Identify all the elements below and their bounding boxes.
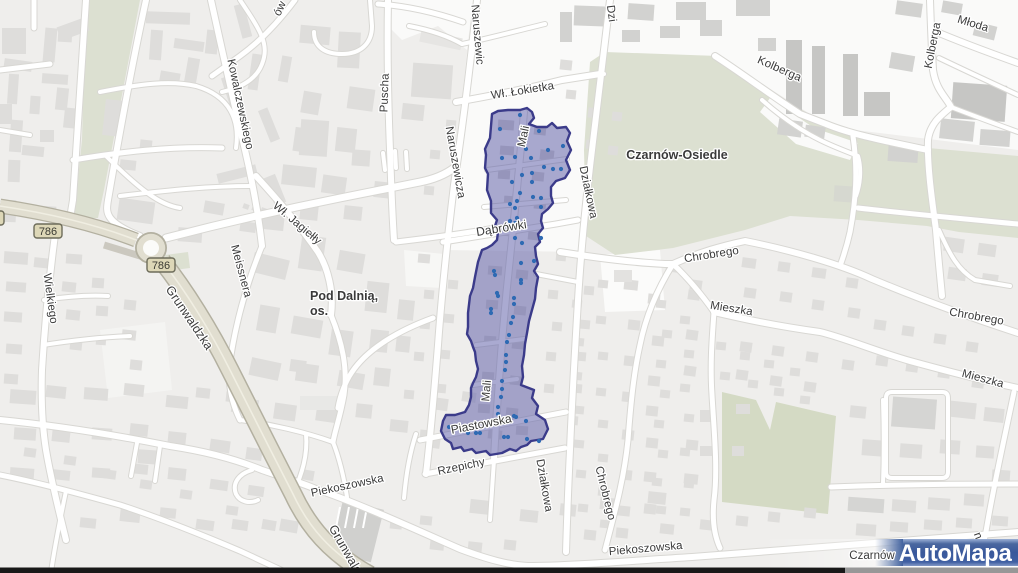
svg-text:Pod Dalnią,: Pod Dalnią, xyxy=(310,289,378,303)
svg-text:Mali: Mali xyxy=(480,380,494,402)
svg-text:Czarnów: Czarnów xyxy=(849,550,895,562)
svg-text:786: 786 xyxy=(39,226,57,238)
svg-text:Dzi: Dzi xyxy=(604,4,618,22)
svg-text:Puscha: Puscha xyxy=(378,73,391,113)
svg-text:786: 786 xyxy=(152,260,170,272)
svg-text:AutoMapa: AutoMapa xyxy=(899,540,1013,567)
svg-text:os.: os. xyxy=(310,304,328,318)
svg-text:Czarnów-Osiedle: Czarnów-Osiedle xyxy=(626,148,727,162)
